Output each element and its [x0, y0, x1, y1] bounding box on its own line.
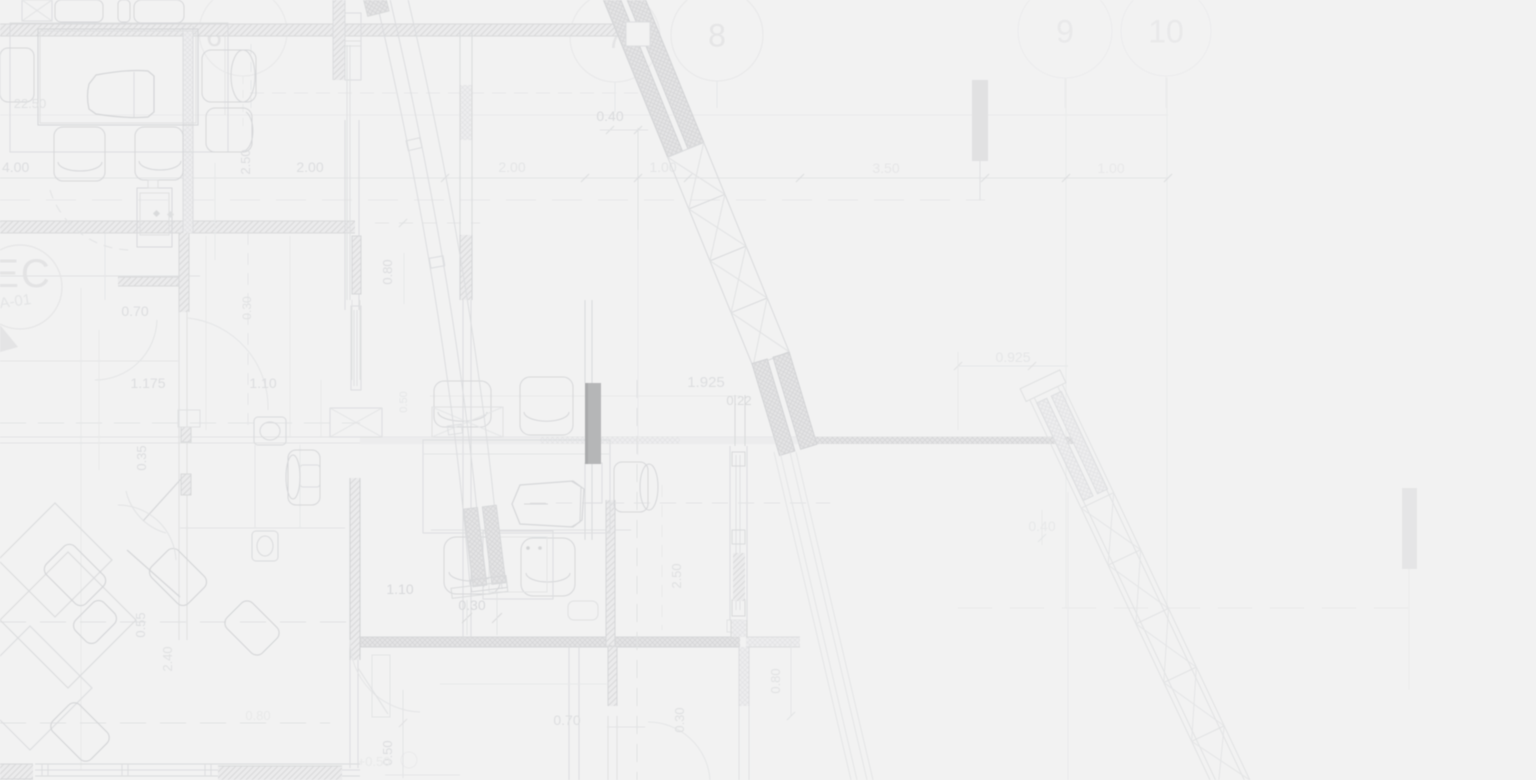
svg-text:0.80: 0.80: [245, 708, 270, 723]
svg-text:1.10: 1.10: [386, 581, 413, 597]
svg-text:0.70: 0.70: [553, 712, 580, 728]
svg-text:1.10: 1.10: [249, 375, 276, 391]
svg-text:2.00: 2.00: [498, 159, 525, 175]
svg-text:0.70: 0.70: [121, 303, 148, 319]
svg-text:1.00: 1.00: [649, 159, 676, 175]
svg-text:2.40: 2.40: [160, 646, 175, 671]
svg-text:+0.50: +0.50: [358, 754, 391, 769]
svg-text:0.22: 0.22: [726, 393, 751, 408]
svg-text:2.50: 2.50: [669, 563, 684, 588]
svg-text:4.00: 4.00: [2, 159, 29, 175]
svg-text:1.925: 1.925: [687, 374, 725, 391]
svg-text:0.35: 0.35: [134, 445, 149, 470]
svg-text:0.30: 0.30: [672, 707, 687, 732]
svg-text:0.50: 0.50: [398, 391, 410, 412]
svg-text:10: 10: [1148, 14, 1184, 50]
svg-text:8: 8: [708, 18, 726, 54]
svg-text:1.00: 1.00: [1097, 160, 1124, 176]
svg-text:0.925: 0.925: [995, 349, 1030, 365]
svg-text:9: 9: [1056, 14, 1074, 50]
svg-text:0.40: 0.40: [596, 108, 623, 124]
svg-text:0.80: 0.80: [380, 259, 395, 284]
svg-text:0.30: 0.30: [458, 597, 485, 613]
svg-text:0.30: 0.30: [240, 296, 254, 320]
svg-text:0.40: 0.40: [1028, 518, 1055, 534]
svg-text:EC: EC: [0, 252, 52, 296]
svg-text:1.175: 1.175: [130, 375, 165, 391]
svg-text:2.00: 2.00: [296, 159, 323, 175]
svg-text:2.50: 2.50: [238, 149, 253, 174]
svg-text:22.50: 22.50: [14, 96, 47, 111]
svg-text:3.50: 3.50: [872, 160, 899, 176]
svg-text:0.80: 0.80: [768, 668, 783, 693]
svg-text:0.55: 0.55: [133, 612, 148, 637]
